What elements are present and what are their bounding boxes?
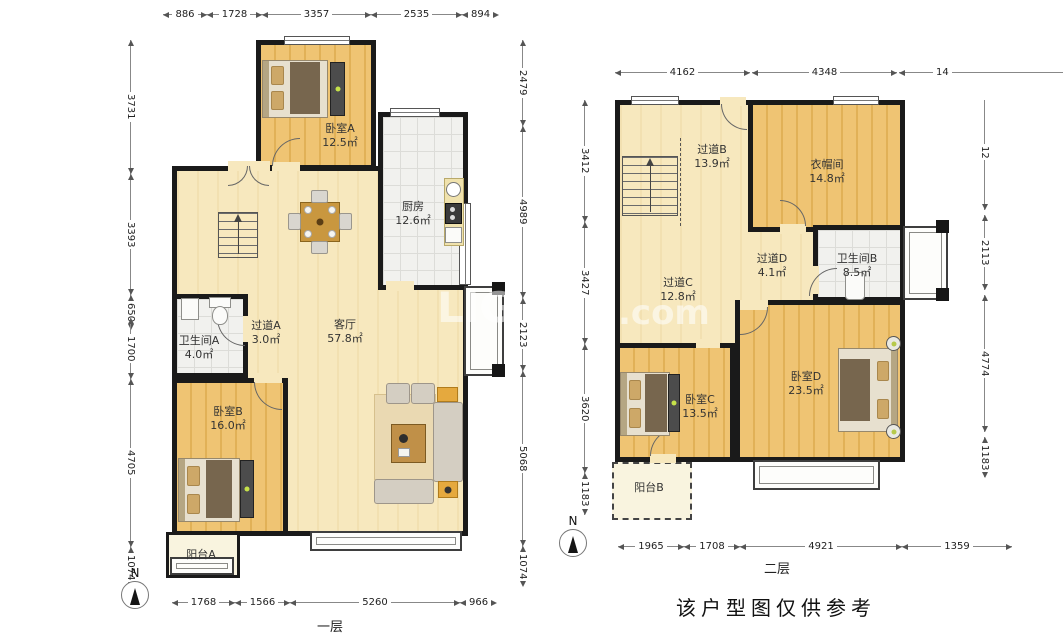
dim-f1-left-2: 3393	[124, 174, 137, 295]
window-icon	[833, 96, 879, 105]
label-hall-b: 过道B 13.9㎡	[672, 143, 752, 172]
dim-f2-top-2: 4348	[752, 66, 897, 79]
dim-f1-right-1: 2479	[516, 40, 529, 126]
sink-icon	[446, 182, 461, 197]
coffee-table-icon	[391, 424, 426, 463]
sofa-icon	[374, 479, 434, 504]
dim-f2-bottom-4: 1359	[902, 540, 1012, 553]
chair-icon	[288, 213, 301, 230]
dim-f1-top-1: 886	[163, 8, 207, 21]
label-hall-a: 过道A 3.0㎡	[236, 319, 296, 348]
label-balcony-a: 阳台A	[171, 548, 231, 562]
armchair-icon	[411, 383, 435, 404]
room-area: 23.5㎡	[766, 384, 846, 398]
dim-f1-right-4: 5068	[516, 371, 529, 546]
dim-f1-right-5: 1074	[516, 546, 529, 583]
dim-f2-top-3: 14	[899, 66, 1063, 79]
label-bedroom-a: 卧室A 12.5㎡	[300, 122, 380, 151]
room-name: 卧室C	[660, 393, 740, 407]
dim-f1-right-3: 2123	[516, 298, 529, 371]
door-opening	[696, 339, 720, 348]
dim-f1-left-3: 650	[124, 295, 137, 318]
label-bath-b: 卫生间B 8.5㎡	[817, 252, 897, 281]
label-cloakroom: 衣帽间 14.8㎡	[787, 158, 867, 187]
dim-f2-right-3: 4774	[978, 295, 991, 432]
window-icon	[631, 96, 679, 105]
window-icon	[390, 108, 440, 117]
dim-f1-top-4: 2535	[371, 8, 462, 21]
label-living: 客厅 57.8㎡	[305, 318, 385, 347]
label-hall-d: 过道D 4.1㎡	[742, 252, 802, 281]
chair-icon	[339, 213, 352, 230]
door-opening	[386, 281, 414, 291]
room-name: 过道A	[236, 319, 296, 333]
floor1-caption: 一层	[295, 616, 365, 635]
dim-f2-bottom-3: 4921	[740, 540, 902, 553]
side-table-icon	[438, 481, 458, 498]
cabinet-icon	[330, 62, 345, 116]
wall-post	[936, 288, 949, 301]
sofa-icon	[433, 402, 463, 482]
watermark: .com	[618, 293, 710, 333]
room-name: 卧室D	[766, 370, 846, 384]
room-name: 衣帽间	[787, 158, 867, 172]
lamp-icon	[886, 336, 901, 351]
dim-f1-top-3: 3357	[262, 8, 371, 21]
bed-icon	[262, 60, 328, 118]
stairs-icon	[218, 212, 258, 258]
room-area: 3.0㎡	[236, 333, 296, 347]
room-name: 卧室B	[188, 405, 268, 419]
compass-north: N	[558, 514, 588, 557]
dim-f2-top-1: 4162	[615, 66, 750, 79]
dim-f1-right-2: 4989	[516, 126, 529, 298]
chair-icon	[311, 241, 328, 254]
chair-icon	[311, 190, 328, 203]
room-name: 客厅	[305, 318, 385, 332]
armchair-icon	[386, 383, 410, 404]
dim-f2-left-3: 3620	[578, 344, 591, 473]
stairs-icon	[622, 156, 678, 216]
bed-icon	[178, 458, 240, 522]
kitchen-cabinet-icon	[445, 227, 462, 243]
room-name: 厨房	[373, 200, 453, 214]
bed-icon	[838, 348, 898, 432]
room-area: 4.1㎡	[742, 266, 802, 280]
dim-f2-right-2: 2113	[978, 215, 991, 290]
dim-f1-top-2: 1728	[207, 8, 262, 21]
wall-post	[492, 364, 505, 377]
toilet-icon	[212, 306, 228, 325]
dim-f2-left-4: 1183	[578, 473, 591, 515]
room-name: 卧室A	[300, 122, 380, 136]
dim-f1-top-5: 894	[462, 8, 494, 21]
label-balcony-b: 阳台B	[619, 481, 679, 495]
dim-f2-bottom-2: 1708	[684, 540, 740, 553]
dining-table-icon	[300, 202, 340, 242]
disclaimer-note: 该户型图仅供参考	[676, 592, 876, 621]
compass-label: N	[558, 514, 588, 528]
bay-window-icon	[753, 460, 880, 490]
washer-icon	[181, 298, 199, 320]
floor2-caption: 二层	[742, 558, 812, 577]
room-name: 过道C	[638, 276, 718, 290]
label-bedroom-c: 卧室C 13.5㎡	[660, 393, 740, 422]
room-area: 57.8㎡	[305, 332, 385, 346]
dim-f1-left-4: 1700	[124, 318, 137, 379]
room-name: 过道B	[672, 143, 752, 157]
room-name: 阳台A	[171, 548, 231, 562]
compass-needle-icon	[121, 581, 149, 609]
lamp-icon	[886, 424, 901, 439]
dim-f1-bottom-2: 1566	[235, 596, 290, 609]
room-area: 13.9㎡	[672, 157, 752, 171]
dim-f2-bottom-1: 1965	[618, 540, 684, 553]
compass-north: N	[120, 566, 150, 609]
compass-needle-icon	[559, 529, 587, 557]
window-icon	[284, 36, 350, 45]
side-table-icon	[437, 387, 458, 402]
dim-f1-left-1: 3731	[124, 40, 137, 174]
room-area: 8.5㎡	[817, 266, 897, 280]
wall-post	[936, 220, 949, 233]
dim-f1-left-5: 4705	[124, 379, 137, 547]
dim-f2-right-4: 1183	[978, 437, 991, 477]
label-bath-a: 卫生间A 4.0㎡	[168, 334, 230, 363]
label-kitchen: 厨房 12.6㎡	[373, 200, 453, 229]
watermark: LIG	[437, 283, 514, 332]
dim-f1-bottom-3: 5260	[290, 596, 460, 609]
dim-f2-left-2: 3427	[578, 222, 591, 344]
room-name: 过道D	[742, 252, 802, 266]
bay-window-icon	[310, 531, 462, 551]
dim-f2-right-1: 12	[978, 100, 991, 210]
dim-f2-left-1: 3412	[578, 100, 591, 222]
dim-f1-bottom-4: 966	[460, 596, 494, 609]
room-name: 阳台B	[619, 481, 679, 495]
room-area: 12.5㎡	[300, 136, 380, 150]
label-bedroom-d: 卧室D 23.5㎡	[766, 370, 846, 399]
room-area: 14.8㎡	[787, 172, 867, 186]
room-area: 4.0㎡	[168, 348, 230, 362]
room-area: 16.0㎡	[188, 419, 268, 433]
compass-label: N	[120, 566, 150, 580]
label-bedroom-b: 卧室B 16.0㎡	[188, 405, 268, 434]
cabinet-icon	[240, 460, 254, 518]
room-name: 卫生间B	[817, 252, 897, 266]
dim-f1-bottom-1: 1768	[172, 596, 235, 609]
room-area: 12.6㎡	[373, 214, 453, 228]
room-name: 卫生间A	[168, 334, 230, 348]
room-area: 13.5㎡	[660, 407, 740, 421]
floor-plan-canvas: 卧室A 12.5㎡ 厨房 12.6㎡ 客厅 57.8㎡ 过道A 3.0㎡ 卫生间…	[0, 0, 1063, 640]
